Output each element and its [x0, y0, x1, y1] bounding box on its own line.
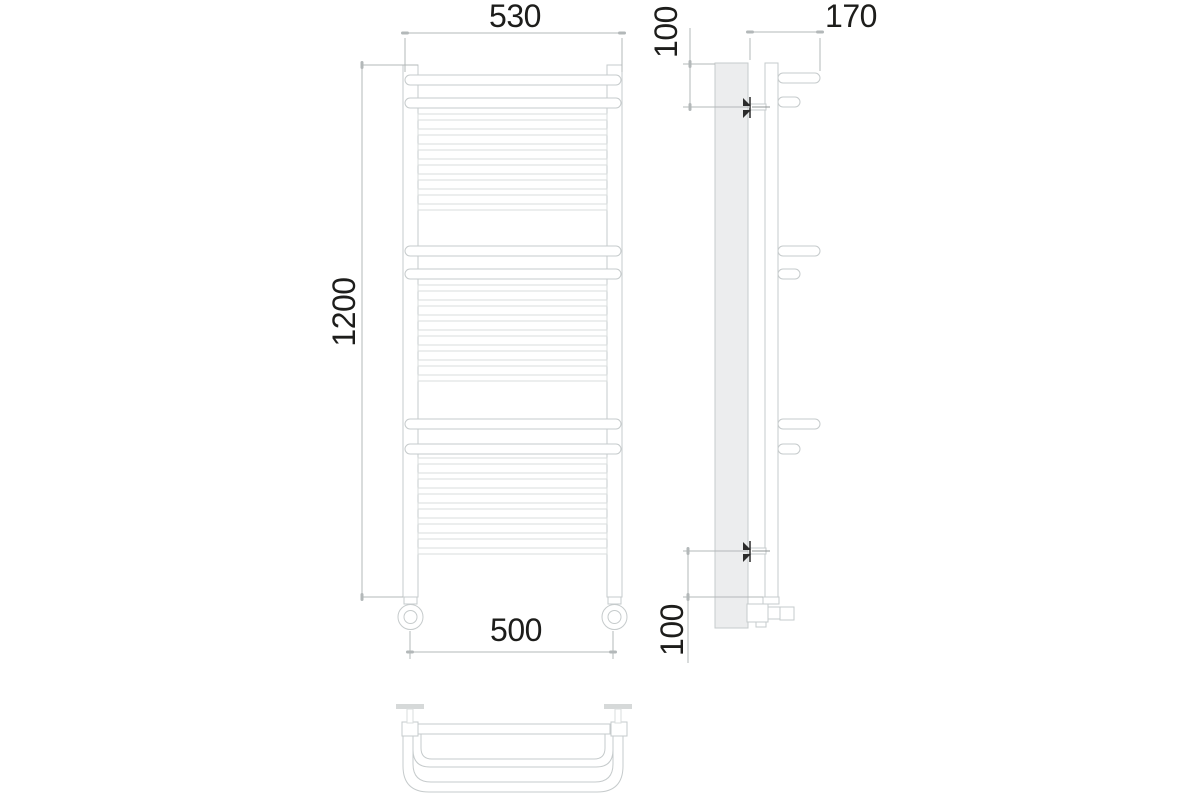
plan-wide-rung-tubes [403, 730, 623, 792]
front-thin-rungs-top [418, 114, 607, 210]
front-valve-left [398, 597, 423, 630]
front-thin-rungs-bottom [418, 458, 607, 554]
side-rail-tube [765, 63, 778, 597]
front-thin-rungs-middle [418, 285, 607, 381]
drawing-canvas: 530 1200 500 100 170 100 [0, 0, 1200, 800]
plan-wall-anchors [396, 704, 632, 723]
dim-label-front-height: 1200 [328, 277, 360, 346]
dim-label-side-top-offset: 100 [650, 6, 682, 58]
side-rung-stubs [778, 73, 820, 454]
plan-view [396, 704, 632, 792]
dim-label-front-top-width: 530 [489, 0, 541, 32]
dim-label-side-bottom-offset: 100 [656, 604, 688, 656]
side-view [683, 28, 824, 663]
dim-label-side-depth: 170 [825, 0, 877, 32]
technical-drawing [0, 0, 1200, 800]
dim-label-front-bottom-width: 500 [490, 614, 542, 646]
dimension-front-top-width [401, 32, 626, 73]
dimension-side-depth [746, 31, 824, 72]
front-valve-right [602, 597, 627, 630]
side-valve-assembly [747, 597, 794, 627]
front-view [361, 32, 628, 660]
plan-cross-tube [417, 724, 610, 734]
